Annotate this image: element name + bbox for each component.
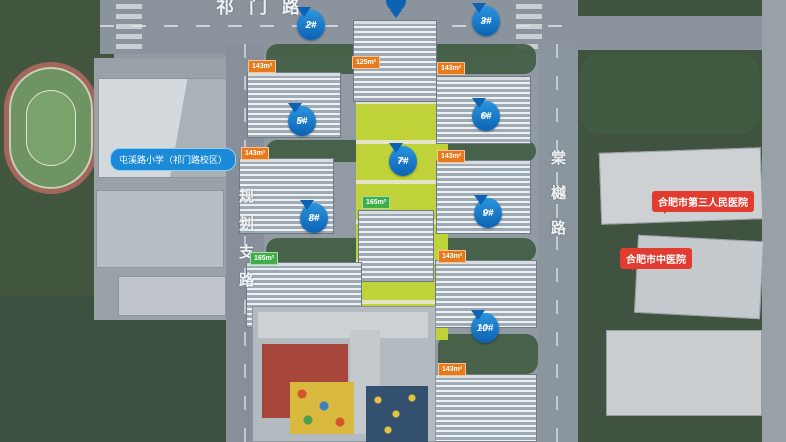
area-tag: 165m² [250, 252, 278, 265]
hospital-label-third-peoples[interactable]: 合肥市第三人民医院 [652, 191, 754, 212]
pin-tail [288, 103, 302, 120]
tower-7 [358, 210, 434, 282]
crosswalk [116, 4, 142, 50]
hospital-label-tcm[interactable]: 合肥市中医院 [620, 248, 692, 269]
area-tag: 143m² [437, 150, 465, 163]
kindergarten-roof [258, 312, 428, 338]
pin-tail [472, 3, 486, 20]
road-name-east: 棠樾路 [547, 150, 568, 255]
school-label[interactable]: 屯溪路小学（祁门路校区） [110, 148, 236, 171]
hospital-rooftop [599, 147, 763, 225]
tower-10 [435, 374, 537, 442]
area-tag: 143m² [438, 363, 466, 376]
road-northeast [578, 16, 786, 50]
pin-tail [474, 195, 488, 212]
trees [580, 54, 760, 134]
hospital-rooftop [606, 330, 762, 416]
pin-tail [389, 143, 403, 160]
pin-tail [297, 7, 311, 24]
pin-tail [472, 98, 486, 115]
pin-tail [300, 200, 314, 217]
school-building [118, 276, 226, 316]
area-tag: 143m² [241, 147, 269, 160]
pin-tail [471, 310, 485, 327]
road-name-west: 规划支路 [235, 188, 256, 300]
area-tag: 165m² [362, 196, 390, 209]
school-field [26, 90, 76, 166]
kindergarten-playground [290, 382, 354, 434]
kindergarten-play-area [366, 386, 428, 442]
area-tag: 143m² [438, 250, 466, 263]
area-tag: 143m² [248, 60, 276, 73]
area-tag: 143m² [437, 62, 465, 75]
road-far-east [762, 0, 786, 442]
school-building [96, 190, 224, 268]
site-plan-map: 祁门路 规划支路 棠樾路 屯溪路小学（祁门路校区） 合肥市第三人民医院 合肥市中… [0, 0, 786, 442]
area-tag: 125m² [352, 56, 380, 69]
